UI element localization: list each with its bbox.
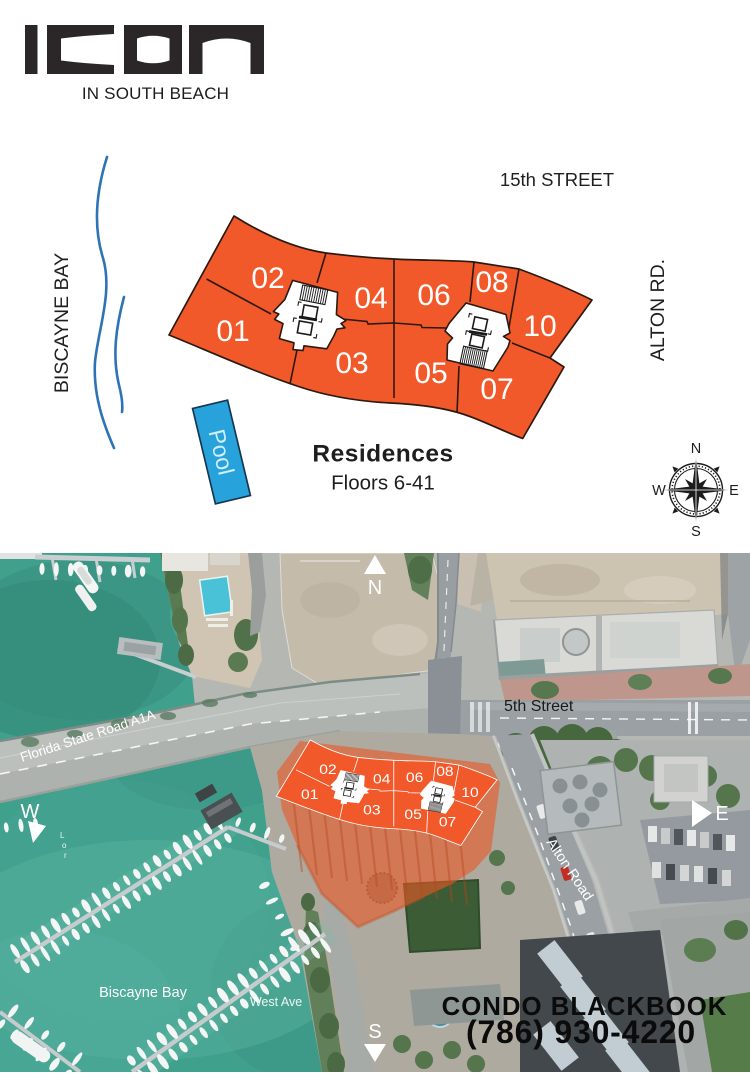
svg-text:W: W bbox=[21, 801, 40, 823]
svg-text:BISCAYNE BAY: BISCAYNE BAY bbox=[51, 253, 73, 393]
svg-text:15th STREET: 15th STREET bbox=[500, 169, 614, 190]
svg-text:N: N bbox=[691, 441, 701, 457]
svg-text:E: E bbox=[729, 483, 739, 499]
svg-text:Biscayne Bay: Biscayne Bay bbox=[99, 985, 188, 1001]
svg-text:(786) 930-4220: (786) 930-4220 bbox=[466, 1014, 696, 1050]
svg-text:r: r bbox=[64, 851, 67, 860]
svg-text:Floors 6-41: Floors 6-41 bbox=[331, 472, 435, 495]
svg-text:5th Street: 5th Street bbox=[504, 698, 574, 715]
svg-text:E: E bbox=[715, 803, 728, 825]
svg-text:IN SOUTH BEACH: IN SOUTH BEACH bbox=[82, 84, 229, 103]
svg-text:W: W bbox=[652, 483, 666, 499]
svg-text:West Ave: West Ave bbox=[250, 995, 302, 1009]
svg-text:N: N bbox=[368, 577, 382, 599]
svg-text:S: S bbox=[368, 1021, 381, 1043]
svg-text:ALTON RD.: ALTON RD. bbox=[647, 259, 669, 361]
svg-text:Residences: Residences bbox=[312, 441, 453, 468]
svg-text:L: L bbox=[60, 831, 65, 840]
svg-text:o: o bbox=[62, 841, 67, 850]
svg-text:S: S bbox=[691, 524, 701, 540]
